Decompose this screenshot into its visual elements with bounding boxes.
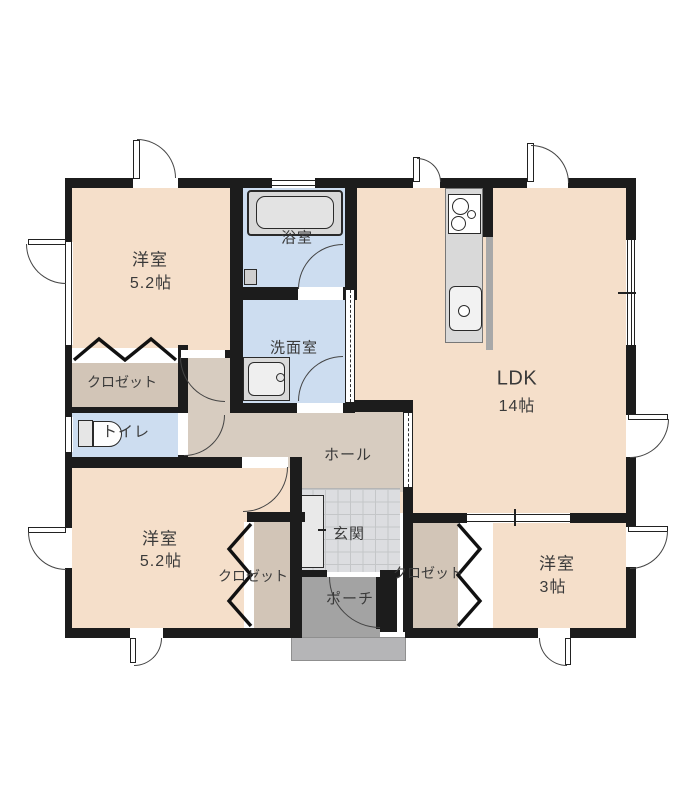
wall	[65, 457, 242, 468]
casement-arc-left-1	[26, 244, 66, 284]
room-label-bathroom: 浴室	[281, 227, 313, 248]
window-ldk-bedroom3-tick	[514, 509, 516, 526]
casement-arc-left-2	[28, 532, 66, 570]
room-label-porch: ポーチ	[326, 588, 374, 609]
room-label-washroom: 洗面室	[270, 337, 318, 358]
sliding-door-washroom-ldk	[345, 290, 355, 402]
kitchen-backsplash	[486, 237, 493, 350]
wall	[65, 407, 188, 413]
room-size-bedroom-bottom-right: 3帖	[540, 573, 567, 597]
room-label-bedroom-bottom-left: 洋室	[142, 525, 178, 550]
wall	[626, 457, 636, 527]
wall	[570, 513, 626, 523]
window-bathroom-top	[272, 179, 315, 187]
casement-arc-bottom-right	[539, 638, 567, 666]
bifold-door-closet-top-left	[72, 336, 178, 362]
wall	[65, 568, 72, 638]
room-label-hall: ホール	[324, 444, 372, 465]
wall	[315, 178, 413, 188]
stove-burner-2	[451, 216, 466, 231]
room-label-ldk: LDK	[497, 368, 537, 391]
threshold	[297, 403, 343, 413]
stove-burner-3	[467, 210, 476, 219]
wall	[230, 287, 298, 300]
room-size-bedroom-bottom-left: 5.2帖	[140, 547, 182, 571]
room-label-closet-top-left: クロゼット	[87, 372, 157, 392]
wall	[290, 570, 327, 577]
sink-faucet	[458, 305, 470, 317]
wall	[405, 628, 538, 638]
window-toilet	[64, 417, 73, 452]
room-label-entrance: 玄関	[333, 523, 365, 544]
door-arc-ldk-top	[531, 145, 569, 183]
wall	[626, 567, 636, 638]
wall	[178, 178, 272, 188]
wall	[65, 178, 72, 242]
porch-step	[292, 638, 405, 660]
bathtub-inner	[256, 196, 334, 229]
wall	[230, 403, 297, 413]
door-arc-kitchen-back	[417, 158, 441, 182]
casement-arc-right-1	[630, 419, 669, 458]
wall	[403, 400, 413, 413]
wall	[626, 345, 636, 415]
room-size-ldk: 14帖	[499, 392, 536, 416]
wall	[163, 628, 293, 638]
wall	[290, 457, 302, 638]
wall	[247, 512, 305, 522]
wall	[225, 350, 243, 358]
wash-basin-faucet	[276, 373, 285, 382]
door-arc-bedroom-top-left	[137, 139, 176, 178]
room-label-closet-bottom-left: クロゼット	[218, 566, 288, 586]
room-label-bedroom-bottom-right: 洋室	[539, 550, 575, 575]
sliding-door-hall-ldk	[403, 413, 413, 487]
wall	[65, 628, 130, 638]
room-size-bedroom-top-left: 5.2帖	[130, 269, 172, 293]
casement-arc-right-2	[630, 531, 668, 569]
wall	[345, 178, 357, 290]
room-label-closet-bottom-right: クロゼット	[393, 563, 463, 583]
floor-plan: 洋室 5.2帖 浴室 洗面室 LDK 14帖 クロゼット トイレ ホール 玄関 …	[0, 0, 699, 804]
wall	[483, 178, 493, 237]
wall	[626, 178, 636, 240]
window-ldk-right-tick	[618, 292, 636, 294]
room-label-bedroom-top-left: 洋室	[132, 246, 168, 271]
room-label-toilet: トイレ	[102, 421, 150, 442]
shoe-cabinet-handle	[318, 529, 326, 531]
bath-stool-icon	[244, 269, 257, 285]
casement-arc-bottom-left	[134, 638, 162, 666]
wall	[65, 178, 133, 188]
toilet-tank-icon	[78, 420, 93, 447]
